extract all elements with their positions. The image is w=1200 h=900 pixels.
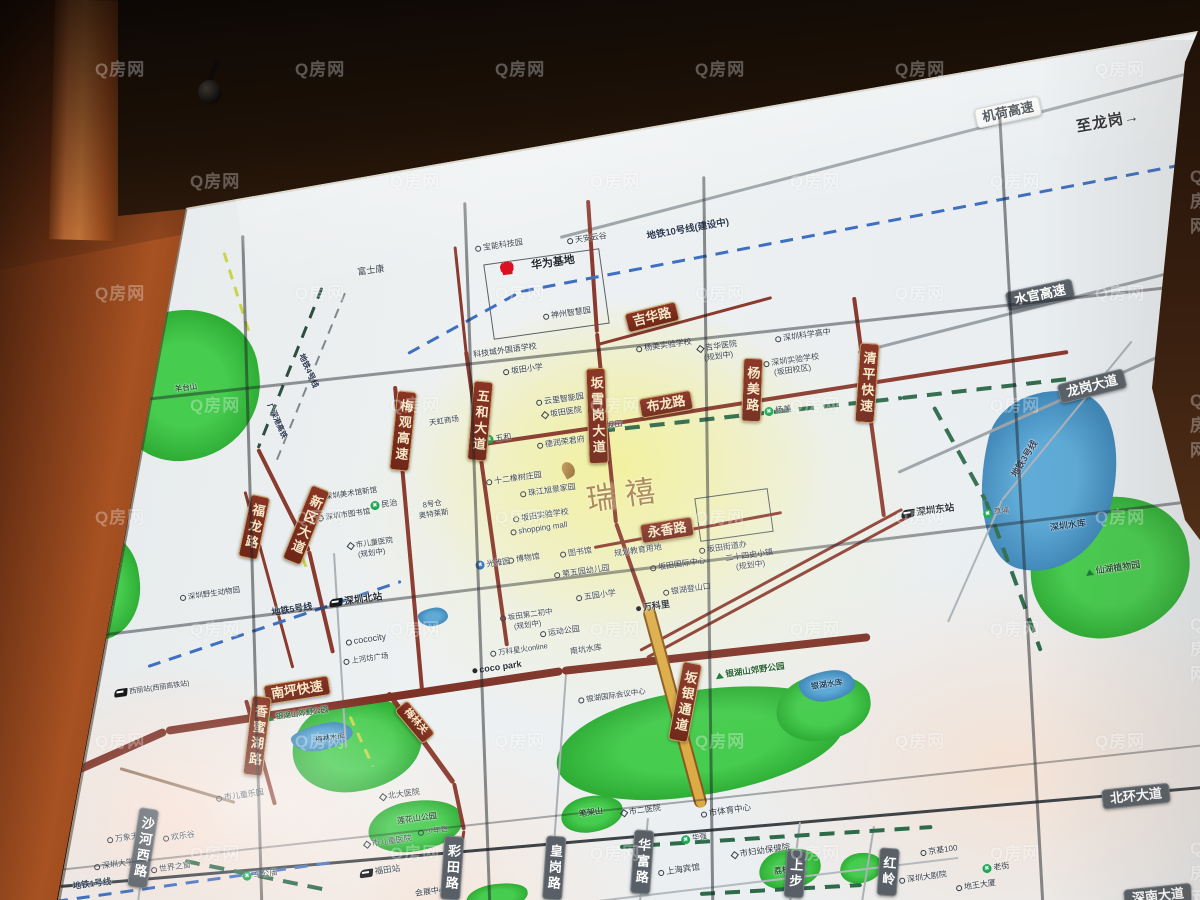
road-name-badge: 上步 [784, 849, 807, 898]
poi-marker-icon [620, 809, 628, 817]
poi-marker-icon [180, 595, 187, 602]
map-icon [499, 260, 517, 275]
map-label-text: 华强 [691, 831, 707, 842]
map-label: 地王大厦 [955, 878, 996, 894]
map-label-text: 老街 [993, 861, 1010, 872]
road-name-badge: 红岭 [877, 847, 900, 896]
map-label: 京基100 [920, 843, 958, 858]
map-label: 市体育中心 [700, 802, 752, 820]
map-label-text: 深圳大剧院 [906, 870, 947, 884]
map-label-text: 京基100 [928, 843, 958, 856]
spotlight-head [198, 80, 222, 104]
poi-marker-icon [567, 238, 574, 245]
road-name-badge: 福龙路 [238, 494, 271, 561]
poi-marker-icon [920, 849, 927, 856]
poi-marker-icon [731, 851, 739, 859]
map-label-text: 市体育中心 [708, 802, 751, 818]
map-label: 上海宾馆 [657, 862, 700, 879]
map-label: 深圳野生动物园 [179, 585, 240, 603]
poi-marker-icon [658, 869, 665, 876]
map-label-text: 深圳野生动物园 [187, 585, 240, 601]
poi-marker-icon [701, 811, 708, 818]
metro-station-icon [982, 864, 992, 874]
poi-marker-icon [899, 877, 906, 884]
spotlight-fixture [196, 58, 246, 118]
poi-marker-icon [543, 313, 550, 320]
poi-marker-icon [956, 885, 963, 892]
huawei-logo-icon [499, 261, 515, 276]
photo-of-map-board: 至龙岗→←至宝安地铁10号线(建设中)地铁5号线地铁1号线地铁4号线广深港高铁地… [0, 0, 1200, 900]
map-label: 深圳大剧院 [899, 870, 948, 887]
road-name-badge: 华富路 [630, 829, 654, 894]
map-label: 老街 [982, 861, 1010, 875]
road-name-badge: 皇岗路 [542, 835, 566, 900]
metro-station-icon [681, 834, 691, 844]
map-label-text: 上海宾馆 [665, 862, 700, 877]
map-label-text: 地王大厦 [963, 878, 996, 891]
